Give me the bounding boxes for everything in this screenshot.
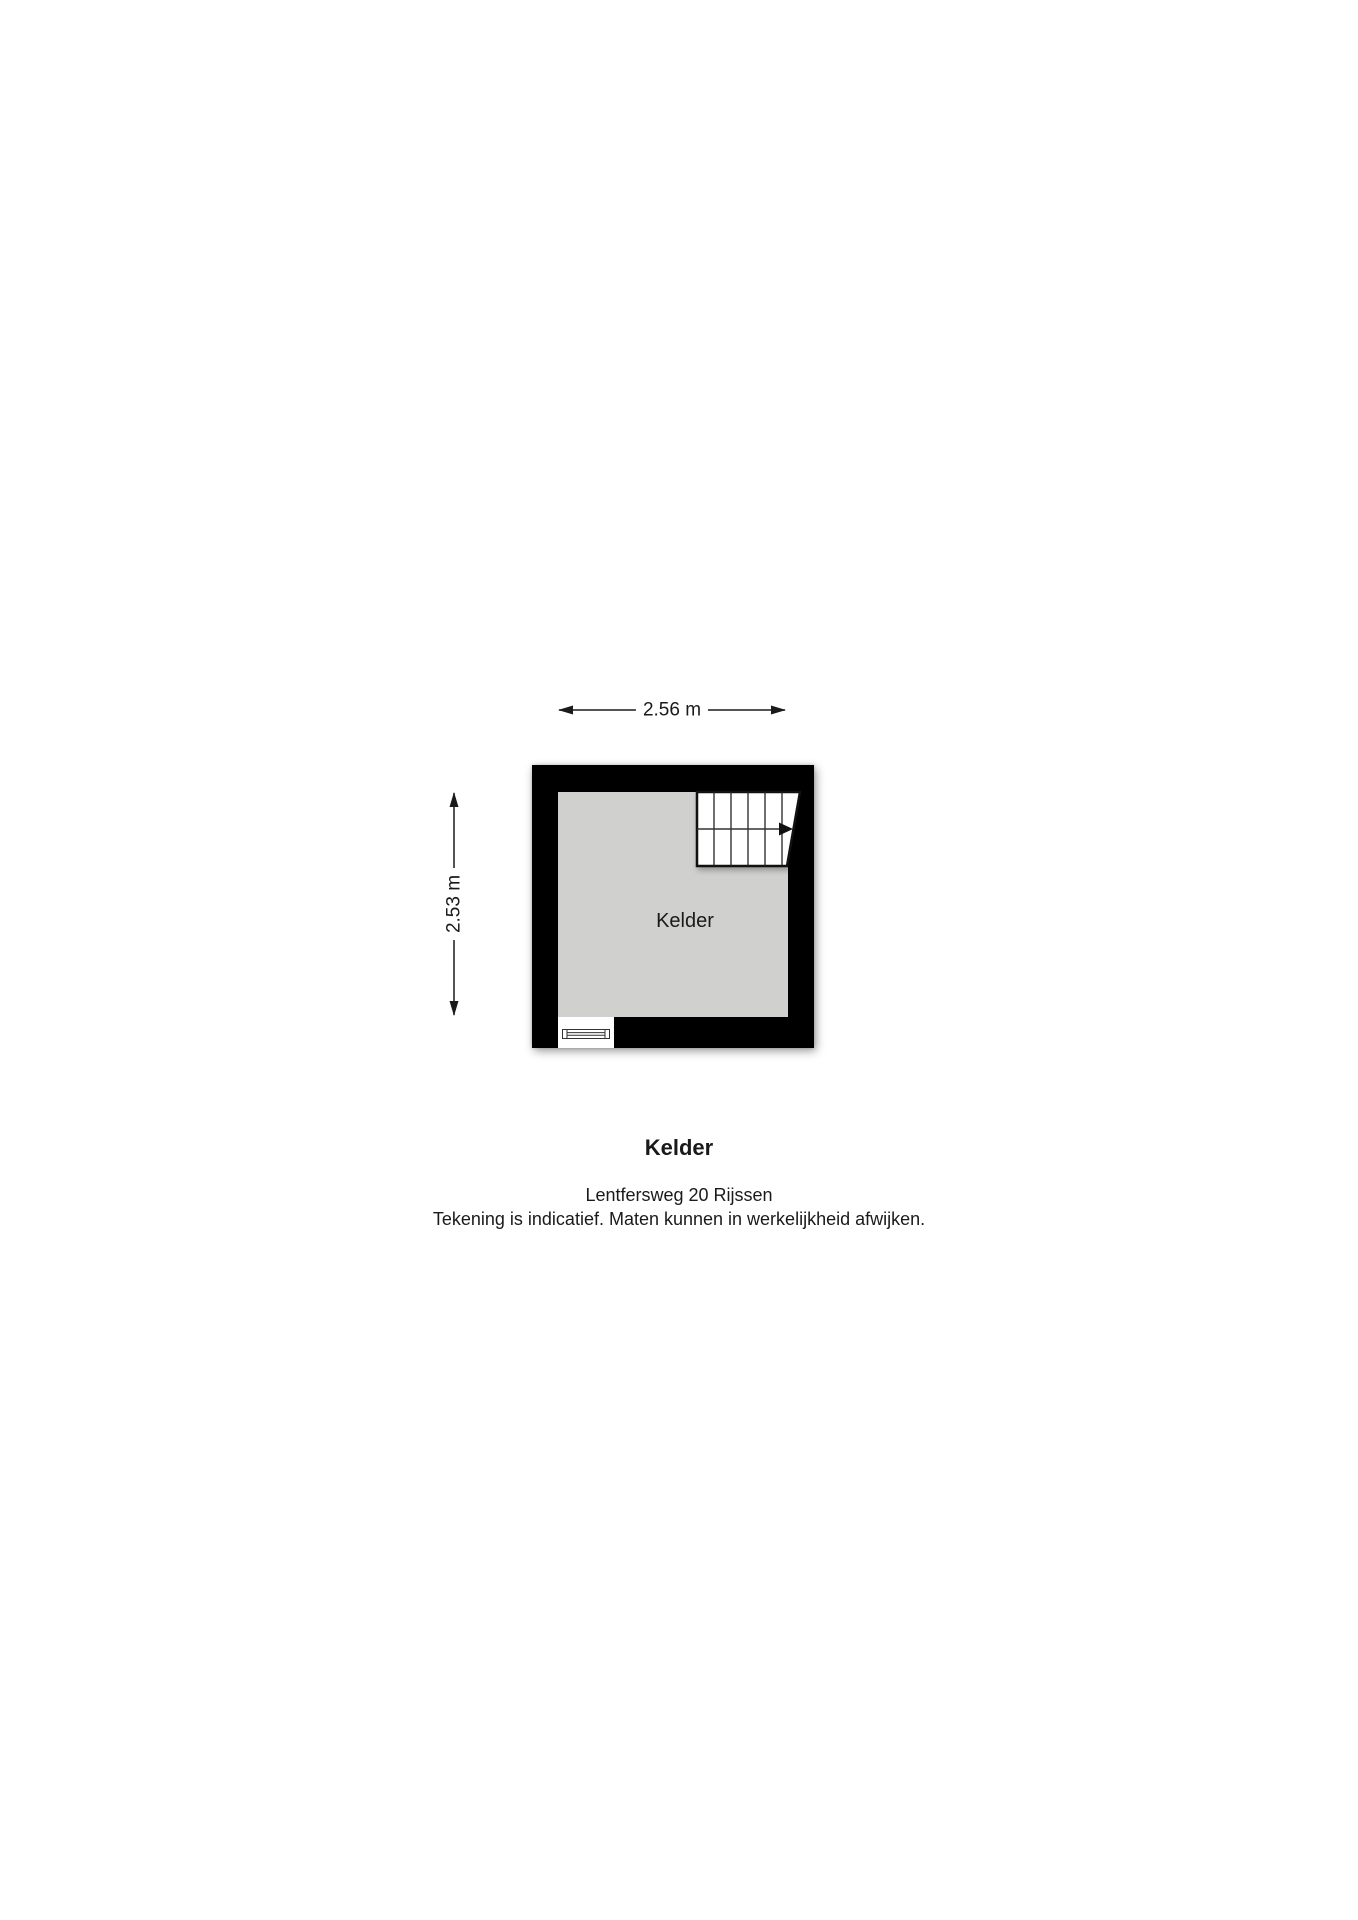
dimension-width-label: 2.56 m: [636, 700, 708, 721]
floorplan-title: Kelder: [0, 1136, 1358, 1160]
address-line: Lentfersweg 20 Rijssen: [0, 1183, 1358, 1207]
disclaimer-line: Tekening is indicatief. Maten kunnen in …: [0, 1207, 1358, 1231]
dimension-height-label: 2.53 m: [444, 868, 465, 940]
window-icon: [562, 1029, 610, 1039]
dimension-vertical: 2.53 m: [442, 791, 466, 1017]
floorplan: Kelder: [532, 765, 814, 1048]
floorplan-page: { "dimensions": { "width_label": "2.56 m…: [0, 0, 1358, 1920]
dimension-horizontal: 2.56 m: [557, 698, 787, 722]
stairs-icon: [695, 790, 805, 869]
room-label: Kelder: [570, 910, 800, 932]
window-opening: [558, 1017, 614, 1048]
floorplan-caption: Lentfersweg 20 Rijssen Tekening is indic…: [0, 1183, 1358, 1231]
